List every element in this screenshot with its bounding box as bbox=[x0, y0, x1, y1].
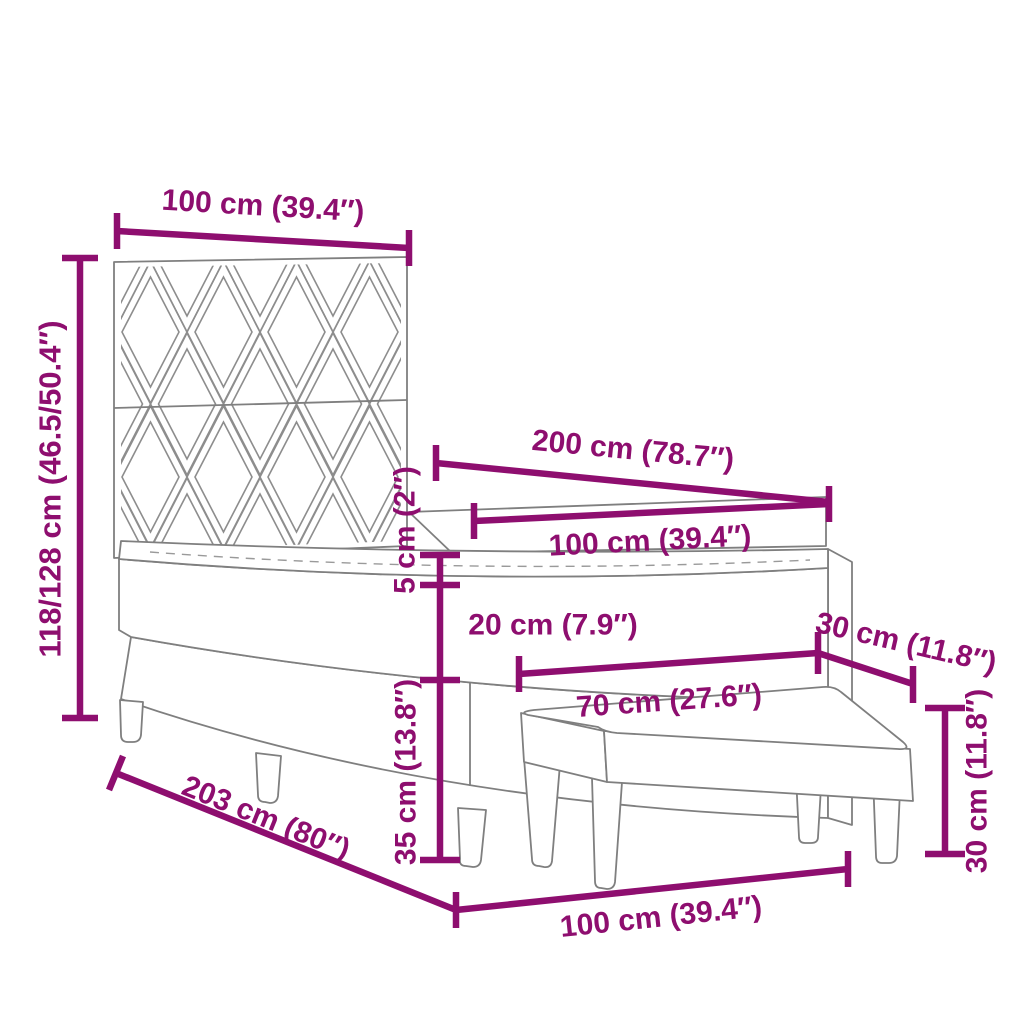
dim-topper-thickness-label: 5 cm (2″) bbox=[389, 466, 422, 594]
dim-headboard-height-label: 118/128 cm (46.5/50.4″) bbox=[33, 320, 68, 657]
product-dimension-diagram: 100 cm (39.4″) 118/128 cm (46.5/50.4″) 2… bbox=[0, 0, 1024, 1024]
dim-bed-length-label: 200 cm (78.7″) bbox=[530, 424, 735, 476]
dim-headboard-height: 118/128 cm (46.5/50.4″) bbox=[33, 258, 99, 718]
dim-bench-height-label: 30 cm (11.8″) bbox=[961, 689, 994, 873]
bed-leg bbox=[120, 700, 143, 742]
bed-leg bbox=[256, 753, 281, 803]
bench-leg-front-left bbox=[592, 778, 622, 889]
bench-leg-back-left bbox=[524, 758, 560, 867]
dim-bench-height: 30 cm (11.8″) bbox=[925, 689, 994, 873]
dim-headboard-width: 100 cm (39.4″) bbox=[117, 184, 409, 266]
dim-mattress-thickness-label: 20 cm (7.9″) bbox=[468, 609, 637, 642]
bed-leg bbox=[458, 808, 486, 867]
dim-headboard-width-label: 100 cm (39.4″) bbox=[161, 184, 365, 229]
dim-bed-width: 100 cm (39.4″) bbox=[456, 851, 848, 944]
dim-base-height-label: 35 cm (13.8″) bbox=[390, 679, 423, 865]
diagram-canvas: 100 cm (39.4″) 118/128 cm (46.5/50.4″) 2… bbox=[0, 0, 1024, 1024]
